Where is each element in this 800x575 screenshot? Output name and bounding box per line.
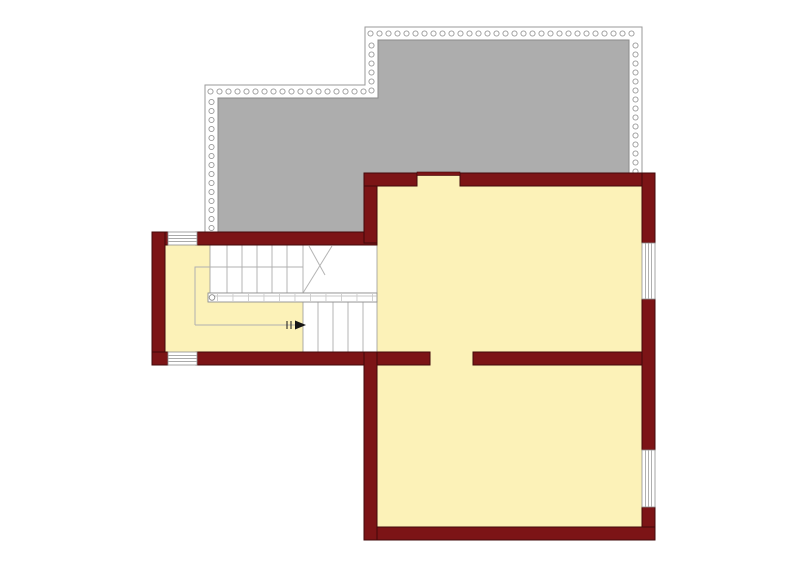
upper-room-floor (377, 186, 642, 352)
baluster-dot (209, 171, 214, 176)
baluster-dot (431, 31, 436, 36)
wall-outer-right-a (642, 173, 655, 243)
baluster-dot (494, 31, 499, 36)
baluster-dot (413, 31, 418, 36)
handrail-newel (209, 295, 215, 301)
baluster-dot (611, 31, 616, 36)
baluster-dot (503, 31, 508, 36)
baluster-dot (449, 31, 454, 36)
baluster-dot (633, 88, 638, 93)
baluster-dot (209, 144, 214, 149)
baluster-dot (512, 31, 517, 36)
baluster-dot (262, 89, 267, 94)
baluster-dot (369, 88, 374, 93)
wall-band-right (473, 352, 655, 365)
baluster-dot (209, 108, 214, 113)
baluster-dot (584, 31, 589, 36)
window-stairhall-top (168, 232, 197, 245)
baluster-dot (334, 89, 339, 94)
baluster-dot (209, 207, 214, 212)
baluster-dot (593, 31, 598, 36)
baluster-dot (316, 89, 321, 94)
baluster-dot (633, 106, 638, 111)
baluster-dot (289, 89, 294, 94)
baluster-dot (476, 31, 481, 36)
baluster-dot (633, 52, 638, 57)
floor-plan (0, 0, 800, 575)
baluster-dot (226, 89, 231, 94)
baluster-dot (485, 31, 490, 36)
window-stairhall-bottom (168, 352, 197, 365)
stair-lower-flight (303, 302, 377, 352)
floor-plan-canvas (0, 0, 800, 575)
baluster-dot (209, 180, 214, 185)
baluster-dot (361, 89, 366, 94)
baluster-dot (209, 153, 214, 158)
baluster-dot (539, 31, 544, 36)
baluster-dot (633, 124, 638, 129)
baluster-dot (548, 31, 553, 36)
baluster-dot (369, 70, 374, 75)
baluster-dot (633, 133, 638, 138)
baluster-dot (368, 31, 373, 36)
baluster-dot (244, 89, 249, 94)
baluster-dot (298, 89, 303, 94)
baluster-dot (307, 89, 312, 94)
terrace-door-lintel (417, 172, 460, 176)
baluster-dot (575, 31, 580, 36)
baluster-dot (343, 89, 348, 94)
window-upperroom-right (642, 243, 655, 299)
baluster-dot (325, 89, 330, 94)
baluster-dot (467, 31, 472, 36)
baluster-dot (404, 31, 409, 36)
lower-room-floor (377, 365, 642, 527)
wall-band-middle (196, 352, 430, 365)
baluster-dot (629, 31, 634, 36)
baluster-dot (377, 31, 382, 36)
baluster-dot (386, 31, 391, 36)
wall-lowerroom-left (364, 352, 377, 540)
baluster-dot (209, 117, 214, 122)
baluster-dot (633, 79, 638, 84)
baluster-dot (633, 151, 638, 156)
baluster-dot (208, 89, 213, 94)
terrace-door-threshold-floor (417, 176, 460, 187)
window-lowerroom-right (642, 450, 655, 507)
baluster-dot (209, 216, 214, 221)
baluster-dot (530, 31, 535, 36)
room-door-opening-floor (430, 352, 473, 365)
baluster-dot (271, 89, 276, 94)
baluster-dot (369, 43, 374, 48)
baluster-dot (209, 162, 214, 167)
baluster-dot (209, 126, 214, 131)
wall-upperroom-top-right (460, 173, 655, 186)
wall-band-left (152, 352, 168, 365)
baluster-dot (633, 43, 638, 48)
baluster-dot (633, 61, 638, 66)
baluster-dot (633, 160, 638, 165)
baluster-dot (209, 99, 214, 104)
baluster-dot (633, 142, 638, 147)
wall-outer-bottom (364, 527, 655, 540)
baluster-dot (633, 97, 638, 102)
baluster-dot (280, 89, 285, 94)
baluster-dot (369, 61, 374, 66)
baluster-dot (209, 225, 214, 230)
baluster-dot (602, 31, 607, 36)
stair-upper-flight (210, 245, 377, 293)
baluster-dot (557, 31, 562, 36)
baluster-dot (566, 31, 571, 36)
baluster-dot (422, 31, 427, 36)
baluster-dot (633, 115, 638, 120)
wall-outer-left (152, 232, 165, 365)
baluster-dot (209, 198, 214, 203)
wall-outer-right-b (642, 299, 655, 450)
baluster-dot (369, 79, 374, 84)
baluster-dot (235, 89, 240, 94)
baluster-dot (209, 189, 214, 194)
baluster-dot (458, 31, 463, 36)
baluster-dot (352, 89, 357, 94)
baluster-dot (521, 31, 526, 36)
baluster-dot (633, 70, 638, 75)
baluster-dot (395, 31, 400, 36)
stair-handrail (208, 293, 377, 302)
wall-upperroom-top-left (364, 173, 417, 186)
baluster-dot (209, 135, 214, 140)
baluster-dot (253, 89, 258, 94)
wall-stairhall-top-main (196, 232, 377, 245)
baluster-dot (440, 31, 445, 36)
baluster-dot (620, 31, 625, 36)
baluster-dot (217, 89, 222, 94)
baluster-dot (369, 52, 374, 57)
